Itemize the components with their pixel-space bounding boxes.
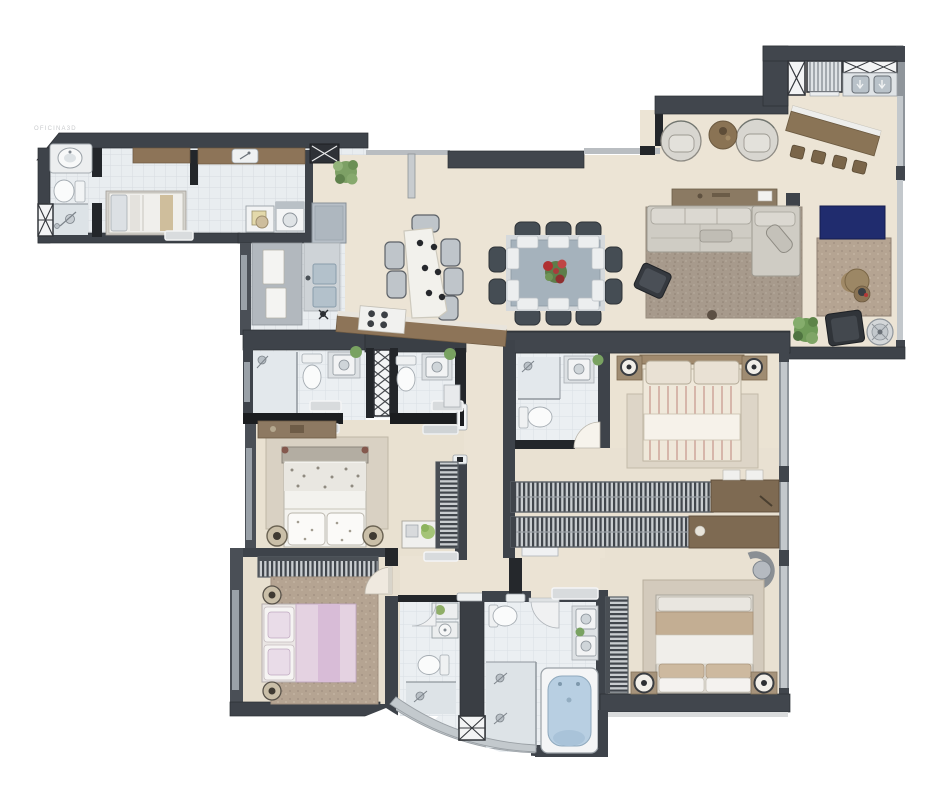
svg-text:OFICINA3D: OFICINA3D	[34, 126, 77, 132]
